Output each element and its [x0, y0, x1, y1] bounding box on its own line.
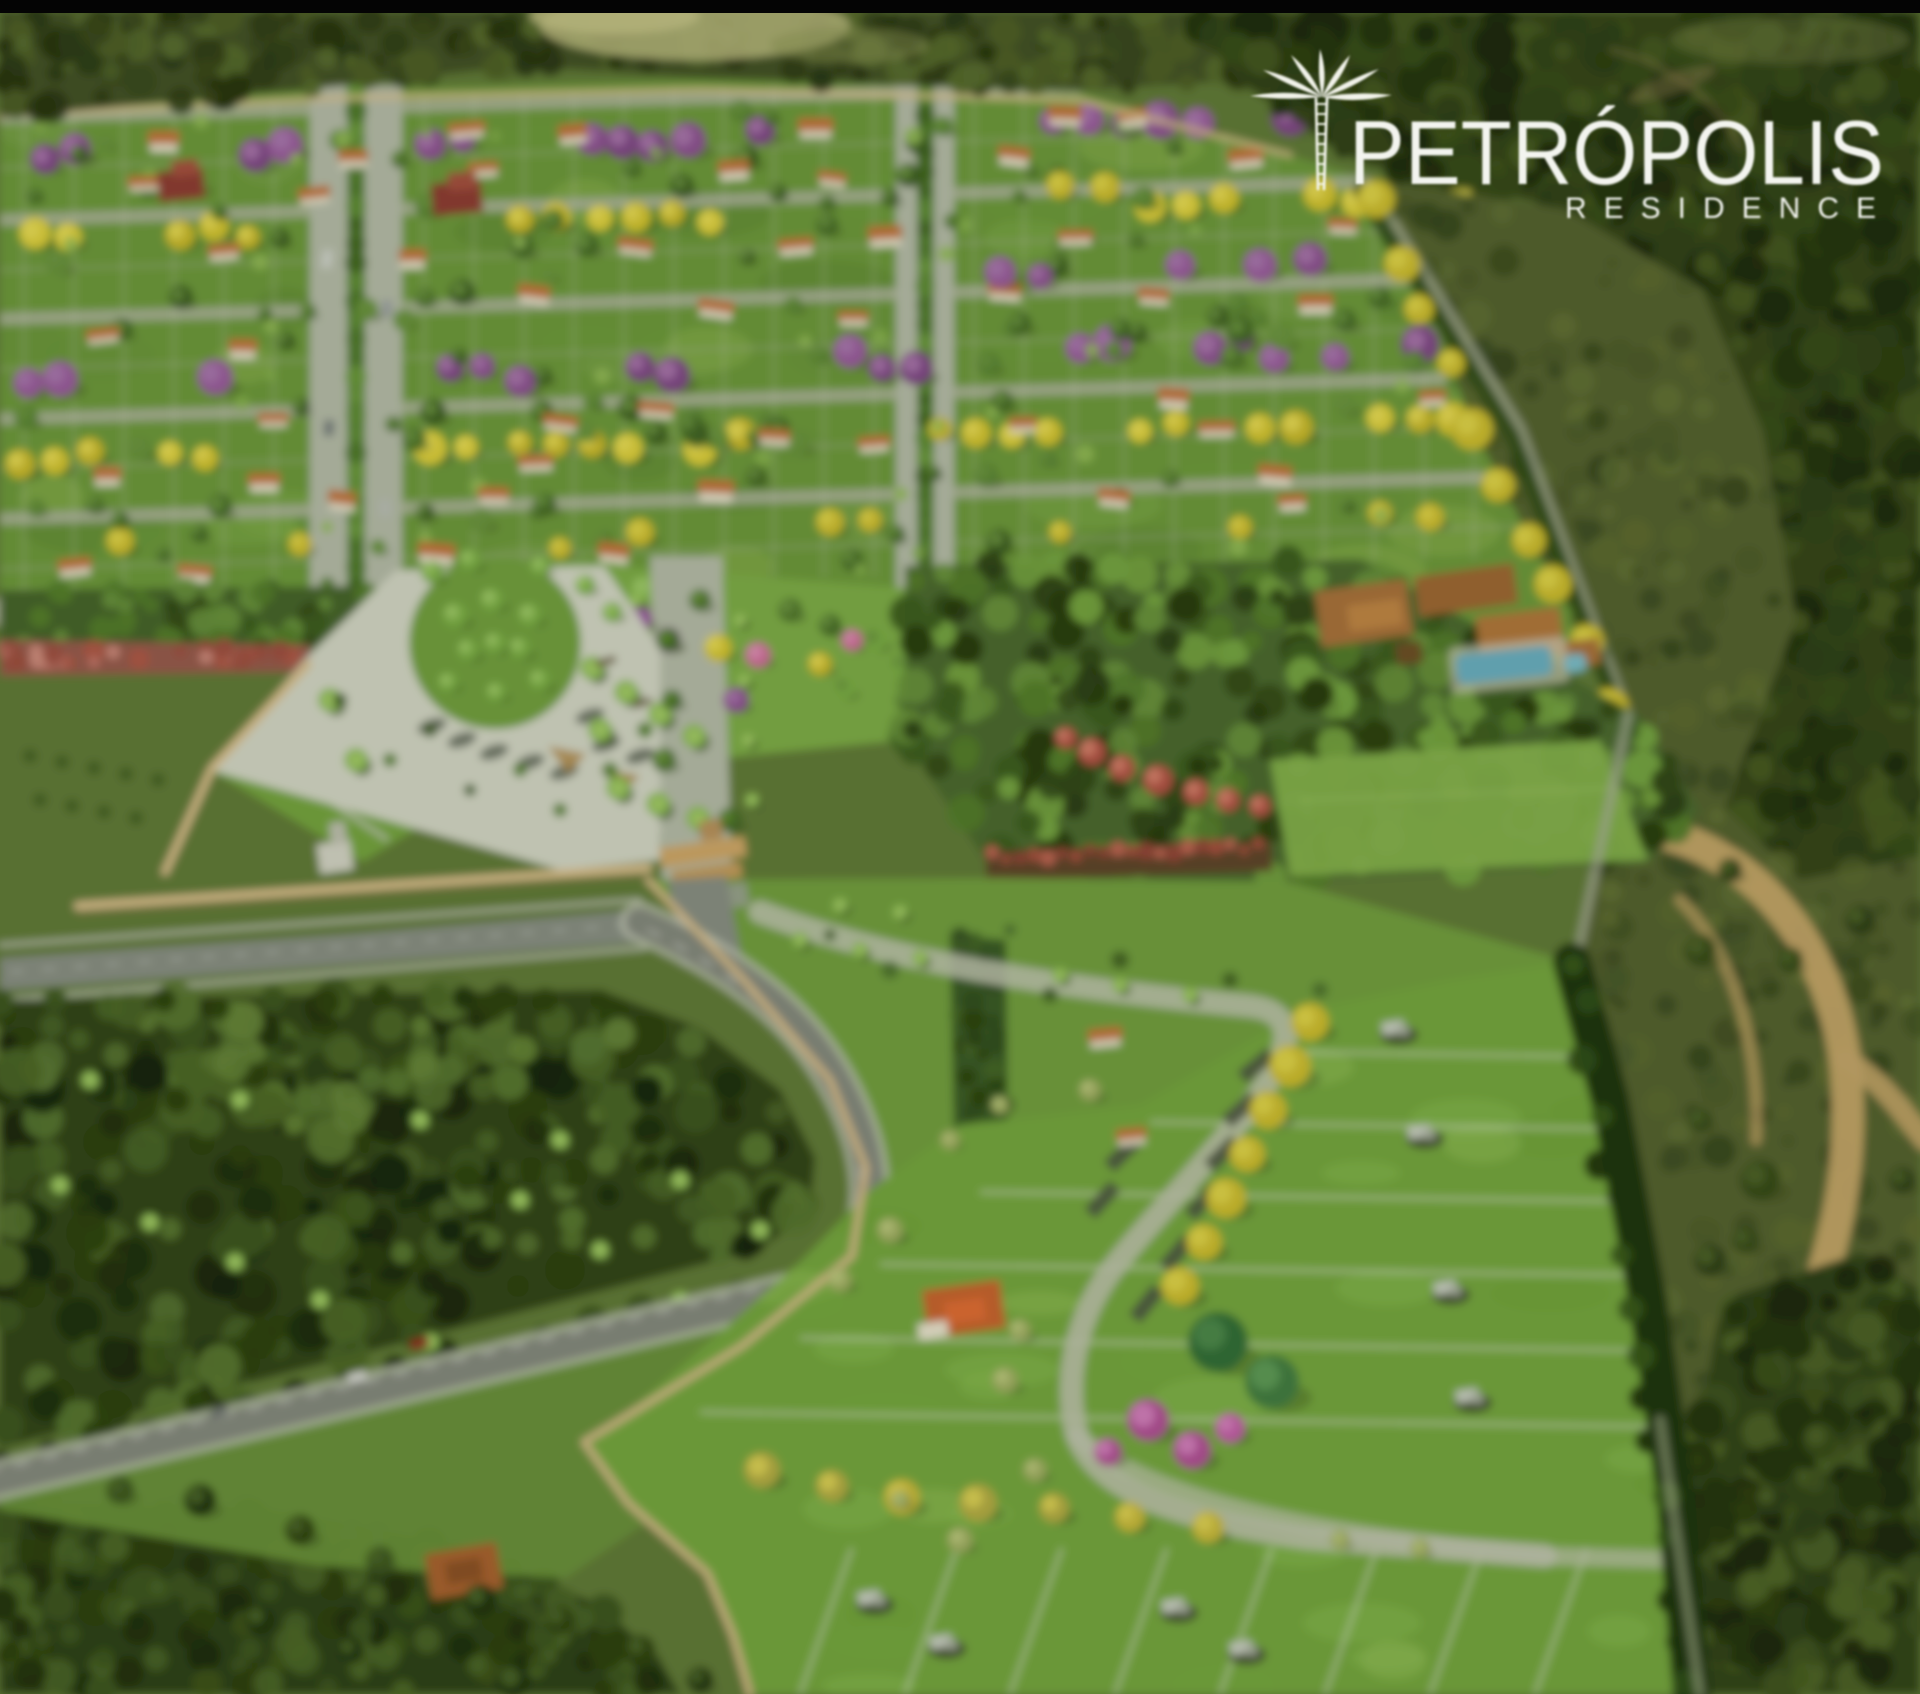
svg-text:RESIDENCE: RESIDENCE [1565, 192, 1893, 225]
svg-text:PETRÓPOLIS: PETRÓPOLIS [1349, 103, 1884, 204]
